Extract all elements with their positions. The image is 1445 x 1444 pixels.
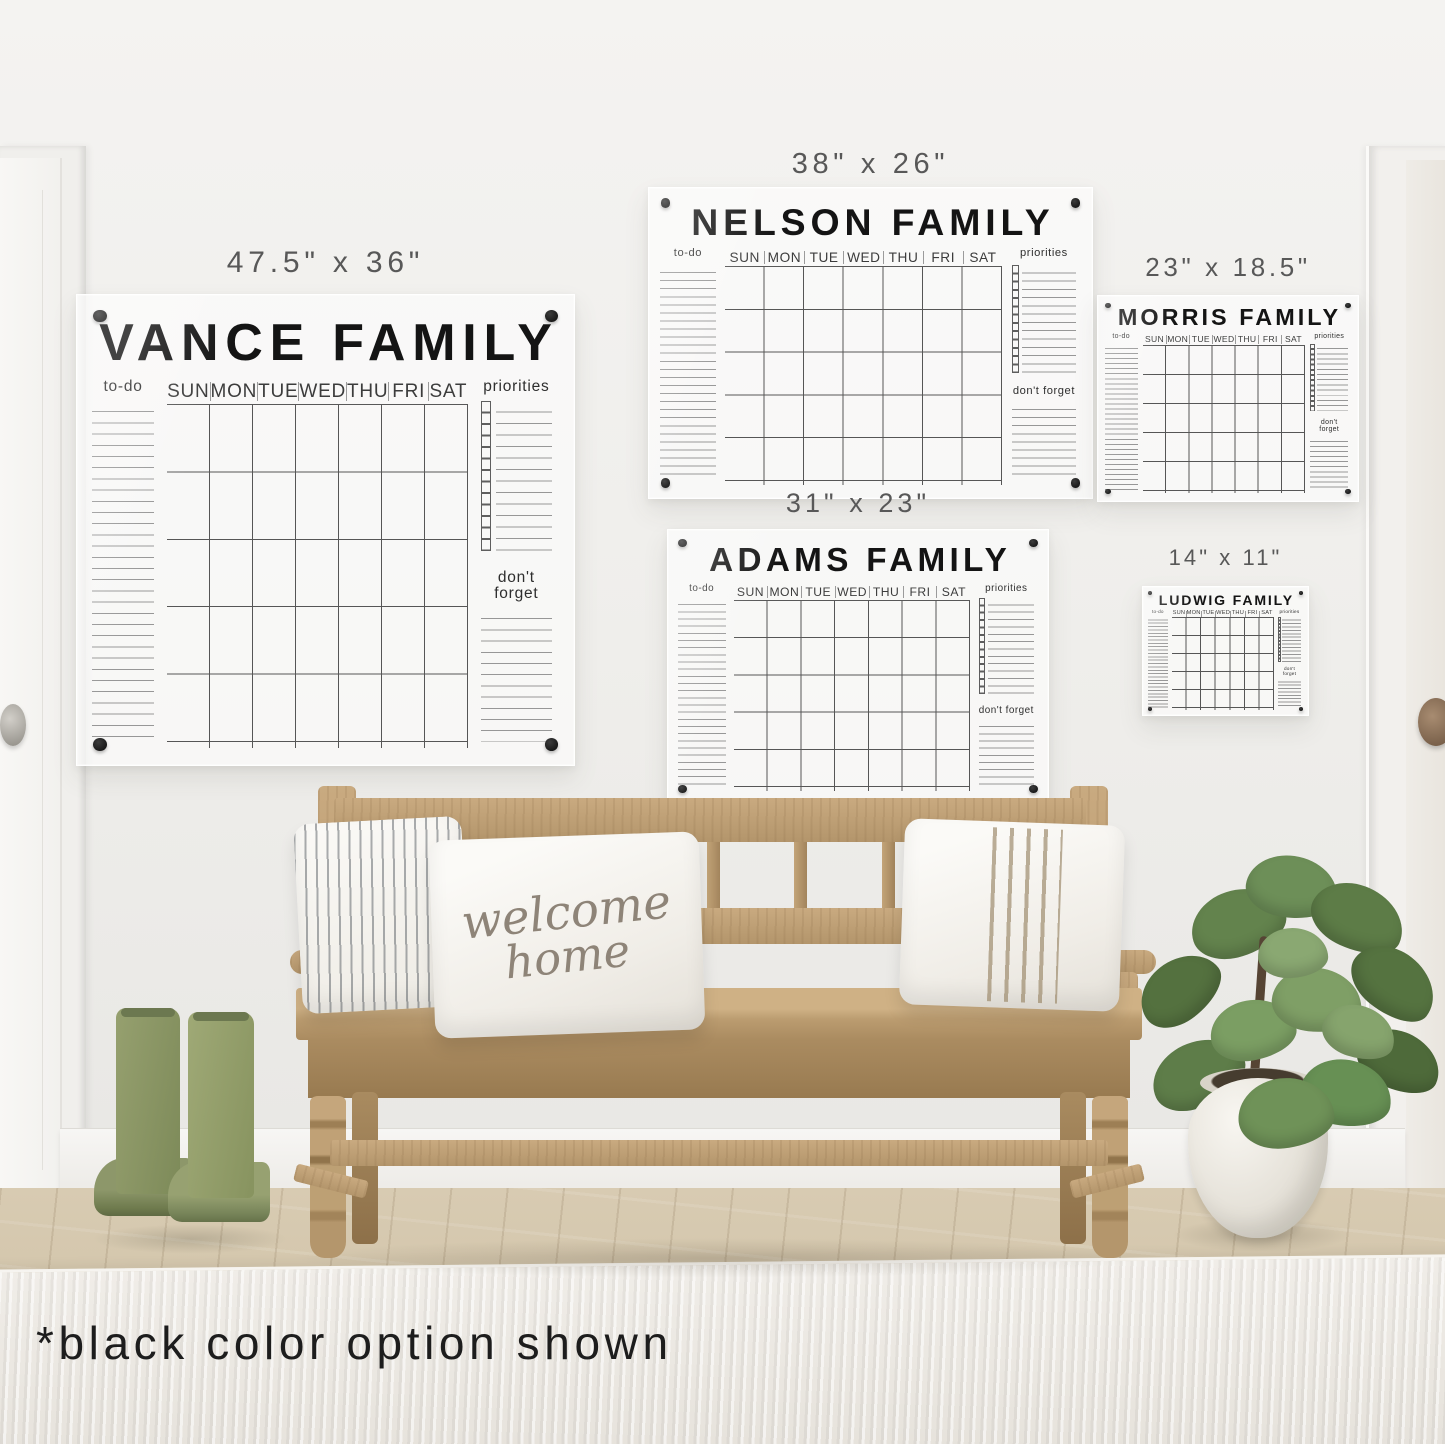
dont-forget-label: don't forget [481, 570, 552, 601]
bench-leg-back [352, 1092, 378, 1244]
size-label: 23" x 18.5" [1145, 252, 1310, 283]
mount-dot [1071, 478, 1081, 487]
priorities-label: priorities [1012, 248, 1077, 259]
dont-forget-lines [481, 608, 552, 742]
bench-leg-back [1060, 1092, 1086, 1244]
todo-label: to-do [660, 248, 716, 259]
todo-lines [92, 401, 154, 742]
dont-forget-lines [1310, 437, 1348, 491]
weekday: WED [1212, 335, 1235, 344]
priorities-label: priorities [1278, 610, 1302, 615]
mount-dot [661, 478, 671, 487]
checklist-lines [1022, 265, 1076, 373]
weekday: TUE [804, 251, 844, 265]
calendar-grid [734, 601, 970, 788]
checklist-lines [1317, 344, 1348, 412]
weekday: TUE [257, 382, 298, 401]
mount-dot [678, 785, 687, 793]
weekday-header: SUN MON TUE WED THU FRI SAT [1172, 610, 1274, 619]
weekday: SAT [963, 251, 1003, 265]
checklist-lines [1282, 617, 1301, 662]
weekday: FRI [388, 382, 428, 401]
month-grid: SUN MON TUE WED THU FRI SAT [1172, 610, 1274, 708]
bench-spindle [794, 842, 807, 908]
calendar-grid [1172, 618, 1274, 708]
acrylic-board: MORRIS FAMILY to-do SUN MON TUE WED THU … [1097, 295, 1359, 502]
todo-column: to-do [660, 248, 716, 481]
weekday: TUE [1189, 335, 1212, 344]
calendar-vance: 47.5" x 36" VANCE FAMILY to-do SUN MON T… [77, 246, 574, 766]
weekday: SUN [167, 382, 209, 401]
weekday: WED [835, 586, 869, 598]
month-grid: SUN MON TUE WED THU FRI SAT [734, 584, 970, 788]
dont-forget-label: don't forget [1310, 420, 1348, 434]
weekday: SAT [936, 586, 970, 598]
todo-lines [1105, 344, 1138, 491]
weekday: SUN [1172, 611, 1186, 617]
priorities-label: priorities [481, 379, 552, 395]
calendar-grid [1143, 346, 1304, 491]
family-name: VANCE FAMILY [77, 317, 574, 369]
todo-lines [660, 265, 716, 482]
calendar-grid [167, 405, 468, 742]
weekday-header: SUN MON TUE WED THU FRI SAT [167, 379, 468, 405]
weekday: MON [1186, 611, 1201, 617]
priorities-checklist [979, 598, 1034, 694]
priorities-label: priorities [1310, 334, 1348, 341]
acrylic-board: VANCE FAMILY to-do SUN MON TUE WED THU F… [76, 294, 575, 766]
bench-spindle [882, 842, 895, 908]
checklist-lines [496, 401, 552, 551]
calendar-grid [725, 267, 1002, 481]
weekday: FRI [923, 251, 963, 265]
calendar-morris: 23" x 18.5" MORRIS FAMILY to-do SUN MON … [1098, 252, 1358, 502]
board-content: to-do SUN MON TUE WED THU FRI SAT [668, 581, 1048, 802]
mount-dot [1148, 707, 1152, 711]
weekday: THU [346, 382, 388, 401]
checkbox-column [1310, 344, 1315, 412]
checkbox-column [1012, 265, 1020, 373]
weekday-header: SUN MON TUE WED THU FRI SAT [1143, 334, 1304, 346]
priorities-checklist [1310, 344, 1348, 412]
dont-forget-lines [979, 720, 1034, 787]
month-grid: SUN MON TUE WED THU FRI SAT [167, 379, 468, 742]
weekday: SAT [428, 382, 468, 401]
size-label: 31" x 23" [786, 488, 930, 519]
mount-dot [1299, 707, 1303, 711]
board-content: to-do SUN MON TUE WED THU FRI SAT [649, 245, 1092, 498]
mount-dot [93, 738, 107, 751]
mount-dot [1071, 198, 1081, 207]
todo-lines [678, 598, 726, 787]
striped-pillow-right [899, 818, 1125, 1012]
bench-stretcher [330, 1140, 1108, 1166]
acrylic-board: LUDWIG FAMILY to-do SUN MON TUE WED THU … [1142, 586, 1309, 716]
month-grid: SUN MON TUE WED THU FRI SAT [725, 248, 1002, 481]
pillow-script-line2: home [503, 929, 632, 985]
dont-forget-label: don't forget [1278, 667, 1302, 676]
bench-apron [308, 1038, 1130, 1098]
family-name: MORRIS FAMILY [1098, 306, 1358, 329]
weekday: MON [764, 251, 804, 265]
weekday: TUE [801, 586, 835, 598]
month-grid: SUN MON TUE WED THU FRI SAT [1143, 334, 1304, 491]
checkbox-column [481, 401, 492, 551]
board-content: to-do SUN MON TUE WED THU FRI SAT [1143, 608, 1308, 715]
todo-column: to-do [1148, 610, 1169, 708]
left-door [0, 158, 62, 1204]
weekday: MON [1166, 335, 1189, 344]
family-name: LUDWIG FAMILY [1143, 593, 1308, 607]
calendar-nelson: 38" x 26" NELSON FAMILY to-do SUN MON TU… [649, 148, 1092, 499]
dont-forget-lines [1278, 679, 1302, 708]
left-door-panel-line [42, 190, 43, 1170]
checkbox-column [979, 598, 986, 694]
weekday: SUN [725, 251, 764, 265]
weekday: FRI [1245, 611, 1260, 617]
todo-label: to-do [1105, 334, 1138, 341]
side-column: priorities don't forget [1278, 610, 1302, 708]
weekday-header: SUN MON TUE WED THU FRI SAT [734, 584, 970, 601]
todo-column: to-do [92, 379, 154, 742]
acrylic-board: ADAMS FAMILY to-do SUN MON TUE WED THU F… [667, 529, 1049, 803]
welcome-home-pillow: welcome home [429, 831, 706, 1038]
family-name: NELSON FAMILY [649, 204, 1092, 241]
bench-spindle [707, 842, 720, 908]
weekday: THU [1230, 611, 1245, 617]
left-door-knob [0, 704, 26, 746]
mount-dot [545, 310, 559, 323]
weekday-header: SUN MON TUE WED THU FRI SAT [725, 248, 1002, 267]
size-label: 38" x 26" [792, 148, 949, 181]
weekday: THU [869, 586, 903, 598]
dont-forget-label: don't forget [979, 706, 1034, 716]
todo-lines [1148, 617, 1169, 708]
todo-label: to-do [1148, 610, 1169, 615]
side-column: priorities don't forget [979, 584, 1034, 788]
calendar-adams: 31" x 23" ADAMS FAMILY to-do SUN MON TUE… [668, 488, 1048, 803]
checkbox-column [1278, 617, 1281, 662]
weekday: THU [883, 251, 923, 265]
weekday: FRI [903, 586, 937, 598]
mount-dot [1345, 303, 1351, 309]
todo-label: to-do [92, 379, 154, 395]
mount-dot [1148, 591, 1152, 595]
board-content: to-do SUN MON TUE WED THU FRI SAT [1098, 332, 1358, 501]
weekday: THU [1235, 335, 1258, 344]
weekday: WED [843, 251, 883, 265]
size-label: 14" x 11" [1169, 545, 1283, 571]
weekday: WED [1215, 611, 1230, 617]
side-column: priorities don't forget [1012, 248, 1077, 481]
boots-shadow [92, 1224, 288, 1254]
dont-forget-lines [1012, 402, 1077, 481]
bench-shadow [288, 1238, 1150, 1278]
family-name: ADAMS FAMILY [668, 544, 1048, 577]
rain-boot [188, 1012, 254, 1198]
footnote-text: *black color option shown [36, 1316, 673, 1370]
mount-dot [545, 738, 559, 751]
checklist-lines [988, 598, 1034, 694]
rain-boot [116, 1008, 180, 1194]
side-column: priorities don't forget [481, 379, 552, 742]
calendar-ludwig: 14" x 11" LUDWIG FAMILY to-do SUN MON TU… [1143, 545, 1308, 716]
weekday: SUN [734, 586, 767, 598]
board-content: to-do SUN MON TUE WED THU FRI SAT [77, 374, 574, 765]
side-column: priorities don't forget [1310, 334, 1348, 491]
weekday: FRI [1258, 335, 1281, 344]
mount-dot [93, 310, 107, 323]
priorities-label: priorities [979, 584, 1034, 594]
mount-dot [661, 198, 671, 207]
todo-column: to-do [678, 584, 726, 788]
weekday: WED [298, 382, 346, 401]
size-label: 47.5" x 36" [227, 246, 425, 280]
weekday: SAT [1281, 335, 1304, 344]
priorities-checklist [481, 401, 552, 551]
priorities-checklist [1278, 617, 1302, 662]
weekday: MON [210, 382, 258, 401]
entryway-product-photo: 47.5" x 36" VANCE FAMILY to-do SUN MON T… [0, 0, 1445, 1444]
todo-label: to-do [678, 584, 726, 594]
todo-column: to-do [1105, 334, 1138, 491]
weekday: MON [767, 586, 801, 598]
mount-dot [1029, 785, 1038, 793]
weekday: SUN [1143, 335, 1165, 344]
acrylic-board: NELSON FAMILY to-do SUN MON TUE WED THU … [648, 187, 1093, 499]
weekday: SAT [1259, 611, 1274, 617]
priorities-checklist [1012, 265, 1077, 373]
dont-forget-label: don't forget [1012, 386, 1077, 397]
weekday: TUE [1201, 611, 1216, 617]
